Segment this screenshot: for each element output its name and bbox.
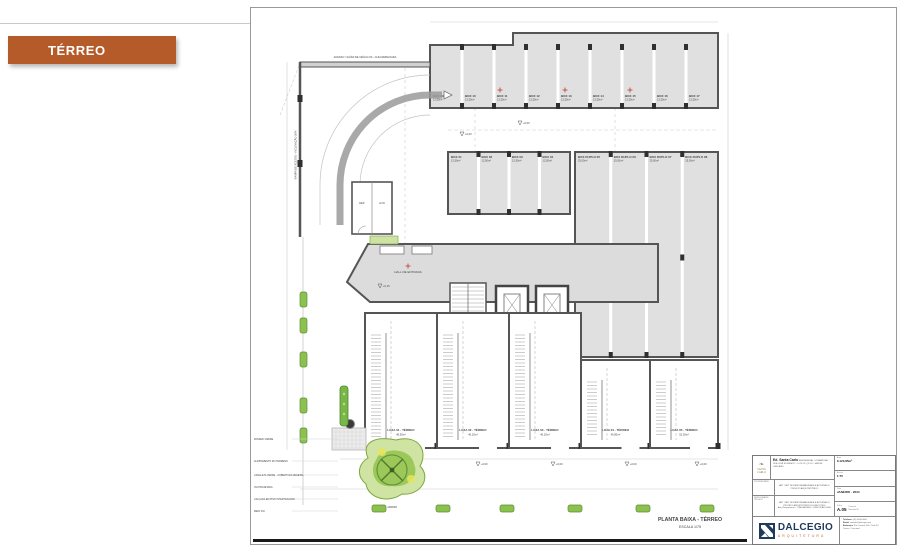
contact-phone: (00) 0000-0000: [853, 519, 867, 521]
box-stall-area: 12,50m²: [512, 159, 522, 163]
counter: [412, 246, 432, 254]
contact-info: Telefone: (00) 0000-0000 Email: contato@…: [839, 517, 895, 545]
planter-icon: [568, 505, 582, 512]
box-stall-label: BOX 04: [543, 155, 554, 159]
box-stall-label: BOX 02: [482, 155, 493, 159]
contact-address1: Rua Central, 000 - Sala 02,: [854, 525, 879, 527]
planter-icon: [436, 505, 450, 512]
margin-note: CALÇADA EM PISO INTERTRAVADO: [254, 498, 295, 501]
responsible-row-label: RESPONSÁVEL TÉCNICO: [753, 496, 775, 516]
level-marker-value: +0,00: [700, 462, 707, 466]
contact-phone-label: Telefone:: [843, 519, 852, 521]
column: [298, 160, 303, 167]
box-stall-area: 12,50m²: [657, 98, 667, 102]
level-marker-value: +0,00: [556, 462, 563, 466]
responsible-text2: Arq. Responsável — CAU A00000-0 · EXECUÇ…: [777, 507, 832, 510]
level-marker-value: +0,00: [523, 121, 530, 125]
box-stall-area: 25,00m²: [650, 159, 660, 163]
project-type: RESIDENCIAL / COMERCIAL: [799, 460, 828, 462]
room-label-lixo: LIXO: [379, 202, 385, 205]
project-address1: RUA JOSÉ BONIFÁCIO - LOTE 05, QD 02 - JA…: [773, 463, 832, 466]
top-boundary-wall: [300, 62, 430, 67]
field-area-value: 9.123,85m²: [837, 459, 893, 463]
level-marker-value: +0,00: [481, 462, 488, 466]
box-stall-label: BOX 15: [625, 94, 636, 98]
responsible-row-text: ART / RRT DE RESPONSABILIDADE E AUTORIA …: [775, 496, 834, 516]
dalcegio-sub: ARQUITETURA: [778, 534, 833, 538]
room-label-dep: DEP.: [359, 202, 365, 205]
title-block: ❧ SANTA CARLO Ed. Santa Carlo RESIDENCIA…: [752, 455, 896, 545]
box-stall-area: 12,50m²: [482, 159, 492, 163]
margin-note: CANALETA VERDE - COBERTURA VEGETAL: [254, 474, 304, 477]
planter-icon: [300, 292, 307, 307]
box-stall-area: 12,50m²: [529, 98, 539, 102]
ramp-top-label: ACESSO / SAÍDA DE VEÍCULOS - GUIA REBAIX…: [334, 55, 397, 59]
floor-banner: TÉRREO: [8, 36, 176, 64]
box-stall-area: 25,00m²: [578, 159, 588, 163]
shop-unit-label: LOJA 01 - TÉRREO: [387, 427, 415, 432]
contact-address2: Centro - Cascavel: [843, 528, 860, 530]
box-stall-area: 25,00m²: [614, 159, 624, 163]
contact-email-label: Email:: [843, 522, 849, 524]
shop-unit-label: LOJA 02 - TÉRREO: [459, 427, 487, 432]
garden-label: JARDIM: [387, 505, 397, 509]
level-marker-value: +0,00: [465, 132, 472, 136]
margin-note: PASSEIO VERDE: [254, 438, 274, 441]
field-area: Área 9.123,85m²: [835, 456, 895, 471]
box-stall-label: BOX 17: [689, 94, 700, 98]
field-data: Data JANEIRO - 2024: [835, 487, 895, 502]
level-marker-value: +0,00: [630, 462, 637, 466]
owner-row-text: ART / RRT DE RESPONSABILIDADE E AUTORIA …: [775, 480, 834, 495]
box-stall-label: BOX 01: [451, 155, 462, 159]
field-escala: Escala 1:75: [835, 471, 895, 486]
dalcegio-logo: DALCEGIO ARQUITETURA: [753, 517, 839, 545]
planter-icon: [700, 505, 714, 512]
shop-unit-area: 48,50m²: [396, 433, 406, 437]
box-stall-label: BOX 10: [465, 94, 476, 98]
owner-row-label: PROPRIETÁRIO: [753, 480, 775, 495]
box-stall-label: BOX 03: [512, 155, 523, 159]
shop-unit-label: LOJA 03 - TÉRREO: [531, 427, 559, 432]
field-folha-value: A.05: [837, 507, 847, 512]
box-stall-label: BOX 11: [497, 94, 508, 98]
box-stall-label: BOX DUPLO 05: [578, 155, 600, 159]
planter-strip: [370, 236, 398, 244]
box-stall-area: 12,50m²: [561, 98, 571, 102]
box-stall-label: BOX DUPLO 06: [614, 155, 636, 159]
contact-email: contato@dalcegio.com: [850, 522, 871, 524]
shop-unit-area: 45,20m²: [540, 433, 550, 437]
box-stall-area: 12,50m²: [593, 98, 603, 102]
project-logo-line2: CARLO: [757, 471, 766, 474]
floor-banner-label: TÉRREO: [8, 43, 106, 58]
box-stall-area: 25,00m²: [685, 159, 695, 163]
planter-icon: [300, 352, 307, 367]
folha-note2: Revisão 00: [849, 509, 859, 512]
shop-unit-label: LOJA 05 - TÉRREO: [670, 427, 698, 432]
box-stall-area: 12,50m²: [451, 159, 461, 163]
margin-note: VIA PROJETADA: [254, 486, 273, 489]
contact-address-label: Endereço:: [843, 525, 853, 527]
shop-unit-area: 45,20m²: [468, 433, 478, 437]
project-logo: ❧ SANTA CARLO: [753, 456, 771, 479]
dalcegio-name: DALCEGIO: [778, 523, 833, 533]
planter-icon: [300, 428, 307, 443]
counter: [380, 246, 404, 254]
box-stall-area: 12,50m²: [625, 98, 635, 102]
dalcegio-logo-icon: [759, 523, 775, 539]
box-stall-label: BOX 13: [561, 94, 572, 98]
planter-icon: [500, 505, 514, 512]
project-name: Ed. Santa Carlo: [773, 458, 798, 462]
column: [298, 95, 303, 102]
box-stall-area: 12,50m²: [497, 98, 507, 102]
planter-icon: [300, 318, 307, 333]
shop-unit-area: 52,30m²: [679, 433, 689, 437]
box-stall-area: 12,50m²: [689, 98, 699, 102]
planter-icon: [372, 505, 386, 512]
level-marker-value: +0,15: [383, 284, 390, 288]
hall-label: HALL DE ENTRADA: [394, 270, 422, 274]
box-stall-area: 12,50m²: [543, 159, 553, 163]
field-escala-value: 1:75: [837, 474, 893, 478]
planter-icon: [636, 505, 650, 512]
planter-icon: [300, 398, 307, 413]
box-stall-label: BOX 16: [657, 94, 668, 98]
field-data-value: JANEIRO - 2024: [837, 490, 893, 494]
box-stall-label: BOX 14: [593, 94, 604, 98]
box-stall-area: 12,50m²: [465, 98, 475, 102]
margin-note: ALINHAMENTO DO TERRENO: [254, 460, 288, 463]
margin-note: MEIO FIO: [254, 510, 265, 513]
field-folha: Folha A.05 Prancha Revisão 00: [835, 502, 895, 516]
box-stall-label: BOX DUPLO 07: [650, 155, 672, 159]
drawing-caption-title: PLANTA BAIXA - TÉRREO: [658, 515, 722, 523]
shop-unit-label: LOJA 04 - TÉRREO: [602, 427, 630, 432]
box-stall-label: BOX DUPLO 08: [685, 155, 707, 159]
shop-unit-area: 46,80m²: [611, 433, 621, 437]
project-address2: CASCAVEL: [773, 466, 832, 469]
drawing-caption-scale: ESCALA 1/75: [679, 525, 701, 529]
box-stall-label: BOX 12: [529, 94, 540, 98]
